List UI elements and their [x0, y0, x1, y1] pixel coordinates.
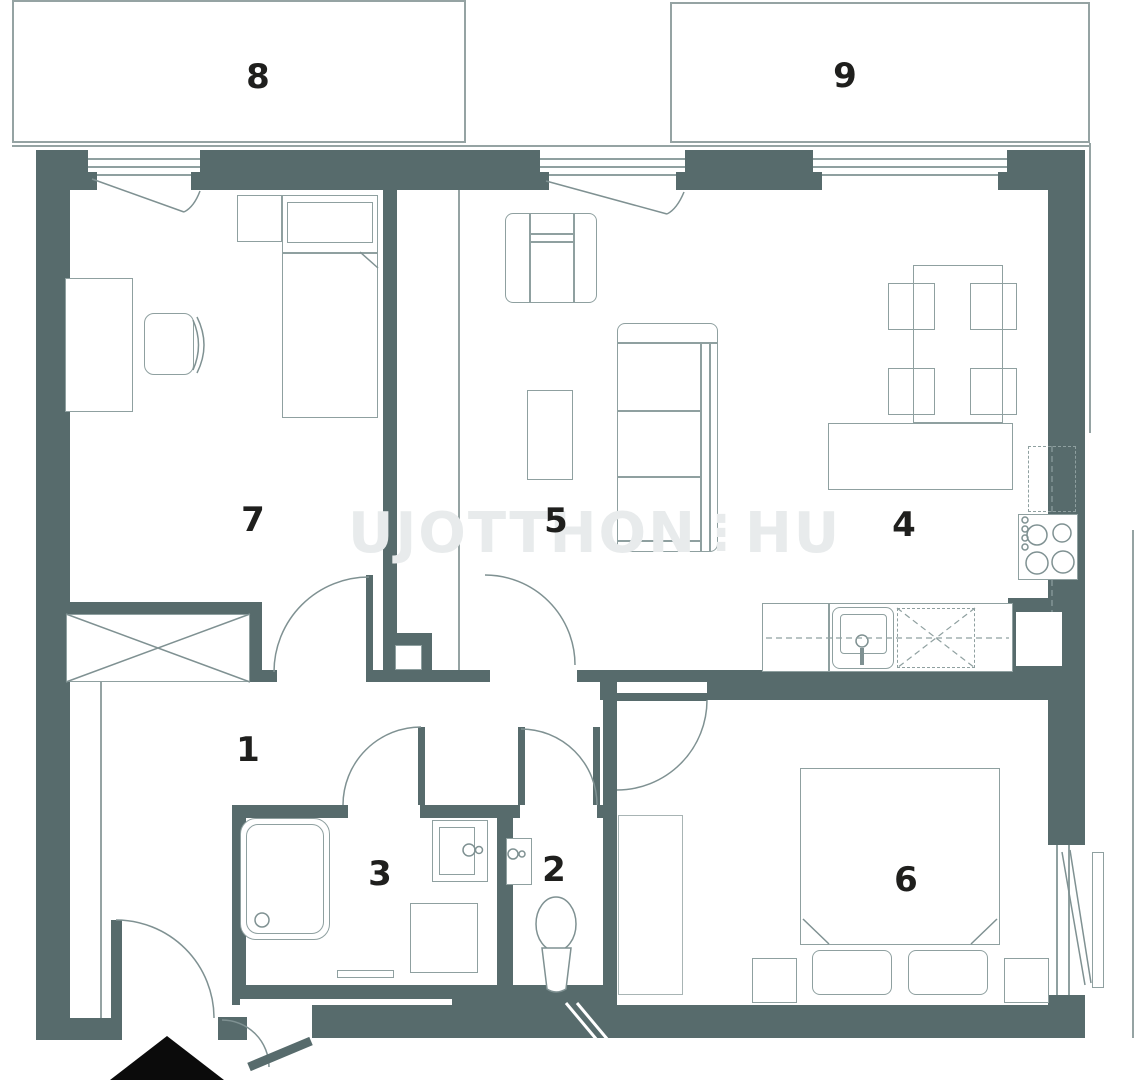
toilet-base-icon	[542, 948, 571, 992]
room-label-4: 4	[892, 505, 916, 545]
faucet-icon	[463, 844, 475, 856]
blanket-fold	[360, 252, 378, 268]
door-arc-room5	[485, 575, 575, 665]
watermark: UJOTTHON ⋮ HU	[348, 504, 800, 562]
door-arc-bathroom	[343, 727, 421, 805]
room-label-9: 9	[833, 56, 857, 96]
entrance-arrow-icon	[110, 1036, 224, 1080]
office-chair-back	[193, 317, 204, 373]
faucet-icon	[519, 851, 525, 857]
knob-icon	[1022, 526, 1028, 532]
knob-icon	[1022, 517, 1028, 523]
door-arc-wc	[521, 729, 597, 805]
room-label-8: 8	[246, 57, 270, 97]
wall-break-marks	[566, 1003, 608, 1040]
room-label-6: 6	[894, 860, 918, 900]
faucet-icon	[508, 849, 518, 859]
watermark-text-right: HU	[745, 501, 841, 566]
door-arc-room7	[274, 577, 369, 672]
room-label-2: 2	[542, 850, 566, 890]
watermark-text-left: UJOTTHON	[348, 501, 697, 566]
room-label-7: 7	[241, 500, 265, 540]
entrance-door-leaf	[249, 1041, 311, 1067]
toilet-bowl-icon	[536, 897, 576, 951]
shower-drain-icon	[255, 913, 269, 927]
balcony-door-swing-room7	[92, 179, 200, 212]
door-arc-hall	[116, 920, 214, 1018]
blanket-folds-double-bed	[803, 919, 997, 944]
faucet-icon	[856, 635, 868, 647]
burner-icon	[1027, 525, 1047, 545]
burner-icon	[1052, 551, 1074, 573]
room-label-3: 3	[368, 854, 392, 894]
watermark-separator: ⋮	[697, 505, 745, 561]
window-casement-open	[1062, 850, 1091, 985]
room-label-1: 1	[236, 730, 260, 770]
floor-plan: UJOTTHON ⋮ HU 8 9 7 5 4 1 3 2 6	[0, 0, 1141, 1080]
burner-icon	[1026, 552, 1048, 574]
room-label-5: 5	[544, 501, 568, 541]
knob-icon	[1022, 544, 1028, 550]
faucet-icon	[476, 847, 483, 854]
door-arc-bedroom	[617, 700, 707, 790]
closet-cross	[66, 614, 250, 682]
balcony-door-swing-room5	[546, 181, 684, 214]
burner-icon	[1053, 524, 1071, 542]
